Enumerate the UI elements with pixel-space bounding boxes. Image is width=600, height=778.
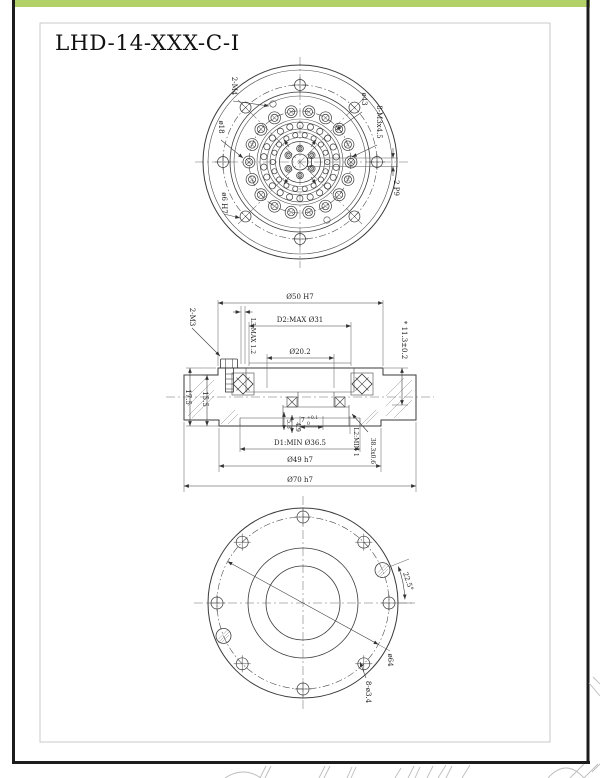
dim-w7-upper-tol: +0.1 [307,415,318,421]
m3-screw [221,359,238,392]
dim-w49: 4.9 [294,422,301,432]
dim-d70: Ø70 h7 [287,476,313,484]
dim-d20: Ø20.2 [289,348,310,356]
callout-holes-label: 8-ø3.4 [364,681,372,704]
drawing-sheet: LHD-14-XXX-C-I [0,0,600,778]
callout-holes: 8-ø3.4 [360,662,372,704]
dim-bolt-circle-64-label: ø64 [386,653,394,667]
dim-w58: 5.8 [285,419,292,429]
dim-depth-11-3: * 11.3±0.2 [400,321,408,359]
dim-keyway-label: 2 P9 [392,180,400,196]
top-view: 2 P9 2-M4 ø43 8-M3x4.5 ø18 ø6 H7 [195,57,408,268]
dim-d50: Ø50 H7 [286,293,313,301]
callout-8-m3: 8-M3x4.5 [375,105,383,139]
callout-dowel-6h7: ø6 H7 [220,192,228,213]
dim-w7-lower-tol: 0 [307,421,310,427]
bottom-view: ø64 22.5° 8-ø3.4 [194,496,415,710]
callout-bore-18: ø18 [217,120,225,133]
dim-l3max: L3:MAX 1.2 [249,318,256,354]
drawing-title: LHD-14-XXX-C-I [55,31,240,56]
dim-h17: 17.5 [184,389,192,405]
section-view: Ø50 H7 D2:MAX Ø31 Ø20.2 L3:MAX 1.2 2-M3 … [166,293,434,492]
dim-bolt-circle-64: ø64 [228,562,394,668]
callout-bolt-circle-43: ø43 [360,92,368,105]
dim-h15: 15.5 [201,391,209,407]
frame-inner [40,23,550,742]
dim-d2max: D2:MAX Ø31 [277,316,324,324]
dim-d49: Ø49 h7 [287,456,313,464]
dim-angle-label: 22.5° [401,571,415,592]
callout-2-m3: 2-M3 [188,308,196,326]
dim-l2min: L2:MIN 1 [352,427,359,456]
dim-d1min: D1:MIN Ø36.5 [274,439,326,447]
wave-generator-bearings [287,397,345,407]
accent-top-bar [12,0,590,7]
dim-angle: 22.5° [389,559,415,603]
callout-2-m4: 2-M4 [230,77,238,96]
sheet-frame [12,0,590,764]
dim-w7: 7 [301,417,305,424]
callout-groove: 38.3x0.6 [369,438,376,464]
